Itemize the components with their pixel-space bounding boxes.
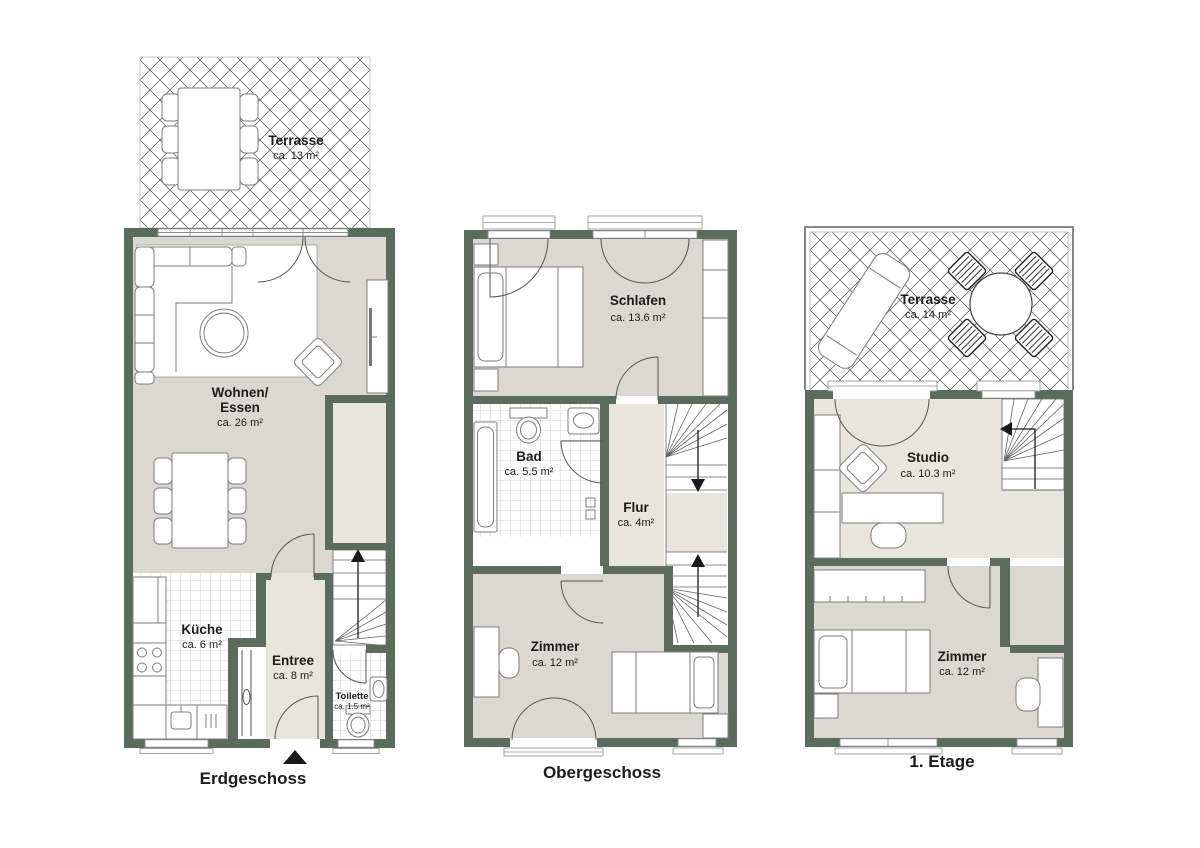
- room-label-terrasse-1et: Terrasse: [900, 292, 956, 307]
- wardrobe-schlafen: [703, 240, 728, 396]
- sideboard-zimmer-1et: [814, 570, 925, 602]
- entrance-marker: [283, 750, 307, 764]
- room-label-terrasse-eg: Terrasse: [268, 133, 324, 148]
- room-area-toilette: ca. 1.5 m²: [334, 702, 370, 711]
- balcony-door-opening: [510, 738, 597, 747]
- room-area-terrasse-eg: ca. 13 m²: [273, 150, 319, 162]
- room-label-toilette: Toilette: [335, 691, 368, 702]
- room-area-wohnen-essen: ca. 26 m²: [217, 417, 263, 429]
- kitchen-window: [145, 740, 208, 747]
- room-area-kueche: ca. 6 m²: [182, 639, 222, 651]
- room-label-bad: Bad: [516, 449, 542, 464]
- floorplan-page: Terrasse ca. 13 m²: [0, 0, 1200, 848]
- floor-label-erdgeschoss: Erdgeschoss: [200, 769, 307, 788]
- dining-table-group: [154, 453, 246, 548]
- floors-eg: [133, 237, 386, 739]
- nightstand: [474, 369, 498, 391]
- room-label-zimmer-1et: Zimmer: [938, 649, 988, 664]
- room-area-entree: ca. 8 m²: [273, 670, 313, 682]
- room-area-studio: ca. 10.3 m²: [900, 468, 955, 480]
- wardrobe-studio: [814, 415, 840, 558]
- floor-label-1etage: 1. Etage: [909, 752, 974, 771]
- room-label-schlafen: Schlafen: [610, 293, 666, 308]
- toilet-window: [338, 740, 374, 747]
- room-area-schlafen: ca. 13.6 m²: [610, 312, 665, 324]
- floorplan-diagram: Terrasse ca. 13 m²: [0, 0, 1200, 848]
- plan-etage1: Terrasse ca. 14 m²: [805, 227, 1073, 771]
- room-label-entree: Entree: [272, 653, 315, 668]
- room-area-zimmer-1et: ca. 12 m²: [939, 666, 985, 678]
- floor-label-obergeschoss: Obergeschoss: [543, 763, 661, 782]
- entrance-opening: [270, 739, 320, 748]
- coffee-table: [200, 309, 248, 357]
- room-label-kueche: Küche: [181, 622, 223, 637]
- room-label-zimmer-og: Zimmer: [531, 639, 581, 654]
- plan-erdgeschoss: Terrasse ca. 13 m²: [124, 57, 395, 788]
- room-area-zimmer-og: ca. 12 m²: [532, 657, 578, 669]
- room-area-terrasse-1et: ca. 14 m²: [905, 309, 951, 321]
- room-label-studio: Studio: [907, 450, 949, 465]
- tv-board: [367, 280, 388, 393]
- nightstand: [703, 714, 728, 738]
- room-area-bad: ca. 5.5 m²: [505, 466, 554, 478]
- room-label-wohnen: Wohnen/: [212, 385, 269, 400]
- nightstand: [474, 244, 498, 265]
- terrace-table-eg: [162, 88, 258, 190]
- room-area-flur: ca. 4m²: [618, 517, 655, 529]
- plan-obergeschoss: Schlafen ca. 13.6 m² Bad ca. 5.5 m² Flur…: [464, 216, 737, 782]
- room-label-flur: Flur: [623, 500, 649, 515]
- terrace-eg: Terrasse ca. 13 m²: [140, 57, 370, 228]
- desk-chair: [1016, 678, 1040, 711]
- desk-chair: [871, 523, 906, 548]
- terrace-table-1et: [970, 273, 1032, 335]
- stove: [133, 643, 166, 676]
- terrace-1et: Terrasse ca. 14 m²: [805, 227, 1073, 390]
- nightstand: [814, 694, 838, 718]
- desk-chair: [499, 648, 519, 678]
- dishwasher: [197, 705, 227, 739]
- washbasin-og: [568, 408, 599, 434]
- room-label-essen: Essen: [220, 400, 260, 415]
